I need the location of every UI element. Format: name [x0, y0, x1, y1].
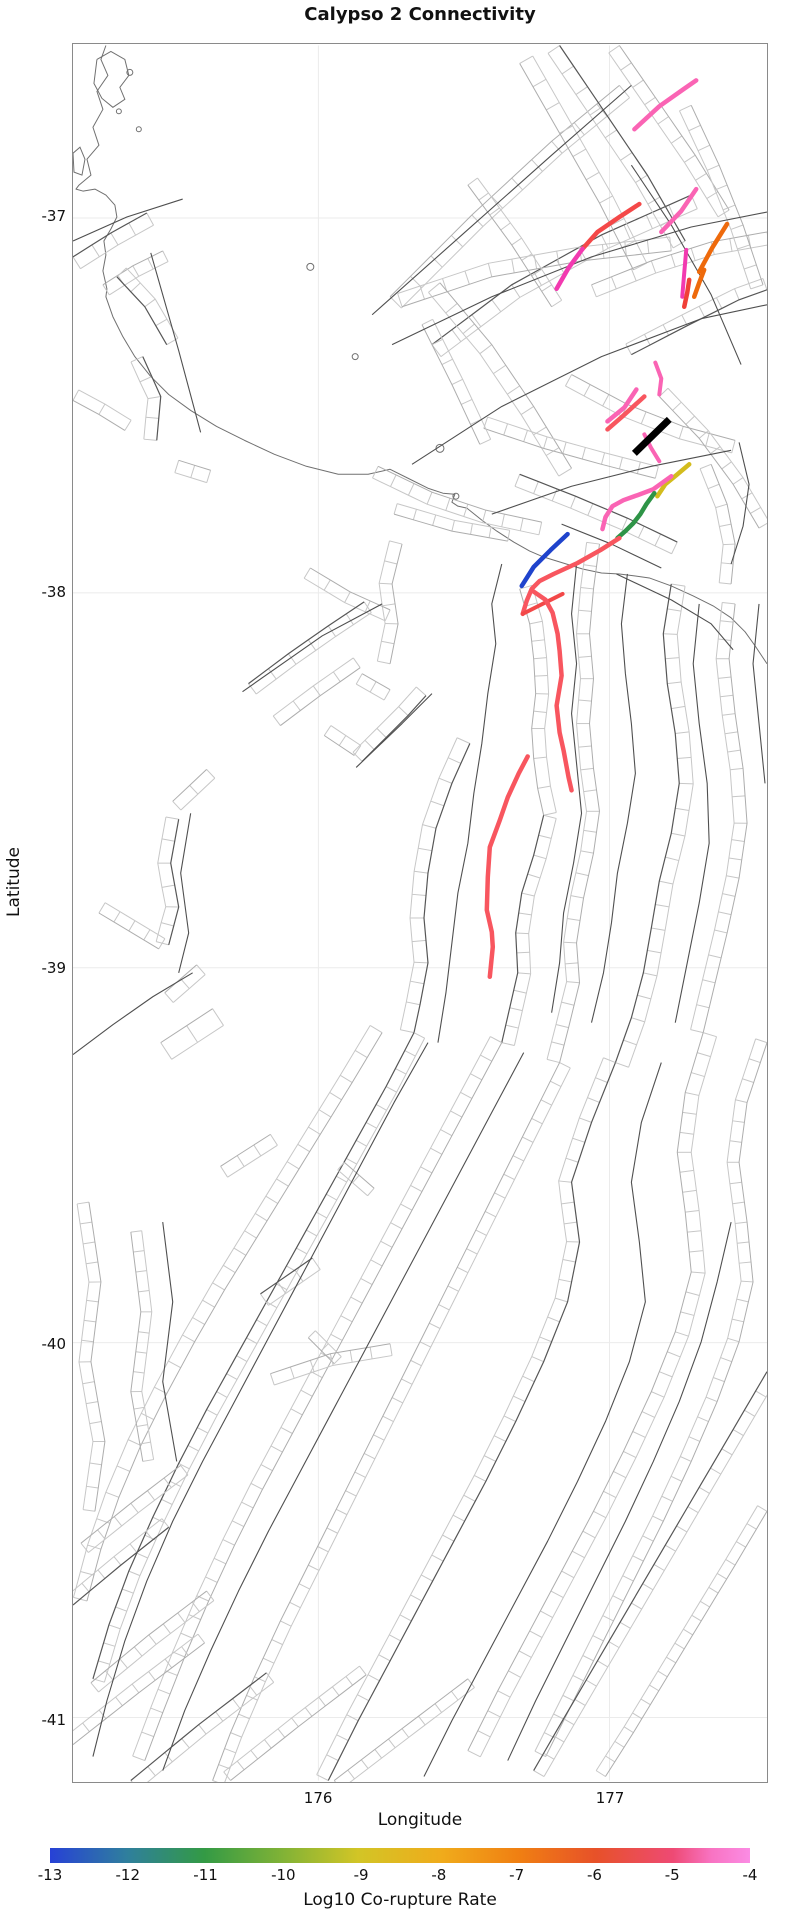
fault-ladder	[221, 1134, 278, 1177]
fault-ladder	[73, 1025, 382, 1601]
fault-ladder	[356, 674, 390, 700]
fault-ladder	[353, 687, 426, 761]
fault-ladder	[520, 585, 557, 815]
y-tick-label: -41	[26, 1711, 66, 1729]
colorbar-tick-label: -5	[650, 1866, 694, 1884]
fault-ladder	[117, 268, 178, 345]
fault-ladder	[131, 1673, 274, 1782]
y-tick-label: -39	[26, 959, 66, 977]
fault-ladder	[609, 46, 729, 217]
fault-ladder	[334, 1679, 474, 1782]
fault-ladder	[317, 1058, 616, 1781]
fault-ladder	[156, 817, 179, 945]
colorbar-tick-label: -4	[728, 1866, 772, 1884]
colorbar-tick-label: -13	[28, 1866, 72, 1884]
fault-ladder	[515, 474, 677, 553]
x-tick-label: 176	[288, 1789, 348, 1807]
rupture-salmon-long-east	[533, 591, 572, 790]
rupture-pink-right-1	[655, 363, 661, 395]
map-plot-area	[72, 43, 768, 1783]
colorbar-label: Log10 Co-rupture Rate	[50, 1890, 750, 1910]
figure: Calypso 2 Connectivity Latitude 176177-3…	[0, 0, 800, 1928]
island-outline	[116, 109, 121, 114]
x-axis-label: Longitude	[72, 1810, 768, 1830]
fault-ladder	[394, 504, 510, 541]
fault-ladder	[161, 1009, 224, 1060]
fault-ladder	[270, 1344, 392, 1385]
rupture-salmon-long-west	[487, 756, 528, 976]
y-tick-label: -38	[26, 583, 66, 601]
fault-trace	[163, 1053, 524, 1771]
fault-ladder	[103, 251, 168, 295]
fault-trace	[753, 604, 765, 783]
fault-ladder	[596, 1506, 767, 1777]
rupture-pink-ne-1	[634, 80, 696, 129]
fault-trace	[179, 813, 191, 973]
fault-ladder	[175, 460, 211, 482]
fault-ladder	[165, 965, 205, 1003]
fault-ladder	[592, 232, 767, 297]
fault-ladder	[422, 319, 491, 444]
fault-ladder	[73, 213, 154, 269]
fault-trace	[424, 1063, 661, 1777]
rupture-orange-1	[699, 224, 727, 272]
colorbar-tick-label: -12	[106, 1866, 150, 1884]
fault-trace	[243, 604, 383, 692]
fault-ladder	[224, 1666, 366, 1780]
fault-trace	[163, 1222, 177, 1461]
fault-ladder	[372, 466, 541, 535]
island-outline	[307, 263, 314, 270]
fault-trace	[73, 973, 193, 1055]
x-tick-label: 177	[580, 1789, 640, 1807]
fault-ladder	[93, 1033, 425, 1683]
fault-trace	[356, 694, 432, 768]
colorbar-tick-label: -9	[339, 1866, 383, 1884]
fault-ladder	[700, 464, 735, 584]
fault-ladder	[77, 1202, 105, 1511]
island-outline	[73, 147, 85, 175]
fault-ladder	[213, 1063, 571, 1782]
fault-ladder	[99, 903, 165, 949]
fault-ladder	[73, 1634, 205, 1744]
fault-trace	[73, 199, 183, 241]
colorbar-tick-label: -6	[572, 1866, 616, 1884]
fault-ladder	[659, 388, 767, 528]
chart-title: Calypso 2 Connectivity	[72, 4, 768, 25]
fault-ladder	[173, 769, 215, 810]
fault-ladder	[260, 1258, 320, 1305]
fault-trace	[372, 85, 631, 314]
fault-trace	[392, 212, 767, 345]
fault-ladder	[377, 541, 402, 664]
fault-ladder	[131, 357, 161, 441]
fault-ladder	[73, 390, 131, 430]
y-tick-label: -37	[26, 207, 66, 225]
island-outline	[136, 127, 141, 132]
y-tick-label: -40	[26, 1335, 66, 1353]
colorbar-tick-label: -11	[184, 1866, 228, 1884]
fault-ladder	[468, 1033, 717, 1757]
fault-ladder	[273, 658, 360, 726]
fault-ladder	[133, 1037, 502, 1761]
fault-ladder	[534, 1372, 767, 1777]
colorbar-tick-label: -8	[417, 1866, 461, 1884]
colorbar-tick-label: -7	[495, 1866, 539, 1884]
y-axis-label: Latitude	[4, 842, 24, 922]
fault-ladder	[338, 1162, 374, 1195]
fault-trace	[151, 253, 201, 432]
fault-trace	[616, 574, 733, 650]
fault-ladder	[324, 726, 361, 756]
fault-ladder	[308, 1331, 341, 1364]
fault-ladder	[248, 602, 371, 694]
rupture-pink-ne-2	[661, 189, 696, 232]
fault-ladder	[502, 815, 556, 1045]
colorbar-tick-label: -10	[261, 1866, 305, 1884]
fault-map	[73, 44, 767, 1782]
island-outline	[352, 354, 358, 360]
fault-trace	[731, 442, 749, 564]
colorbar-gradient	[50, 1848, 750, 1863]
